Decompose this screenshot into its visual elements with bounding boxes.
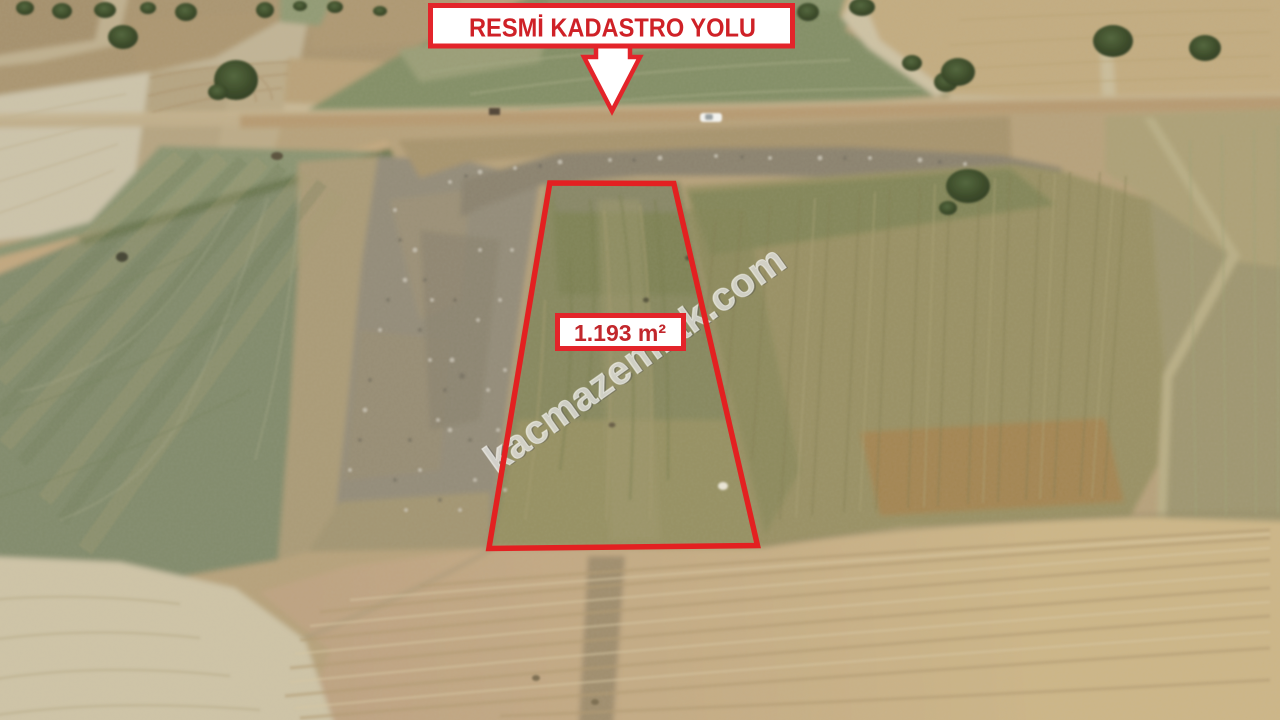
svg-text:RESMİ KADASTRO YOLU: RESMİ KADASTRO YOLU: [469, 15, 756, 43]
svg-text:1.193 m²: 1.193 m²: [574, 320, 666, 346]
